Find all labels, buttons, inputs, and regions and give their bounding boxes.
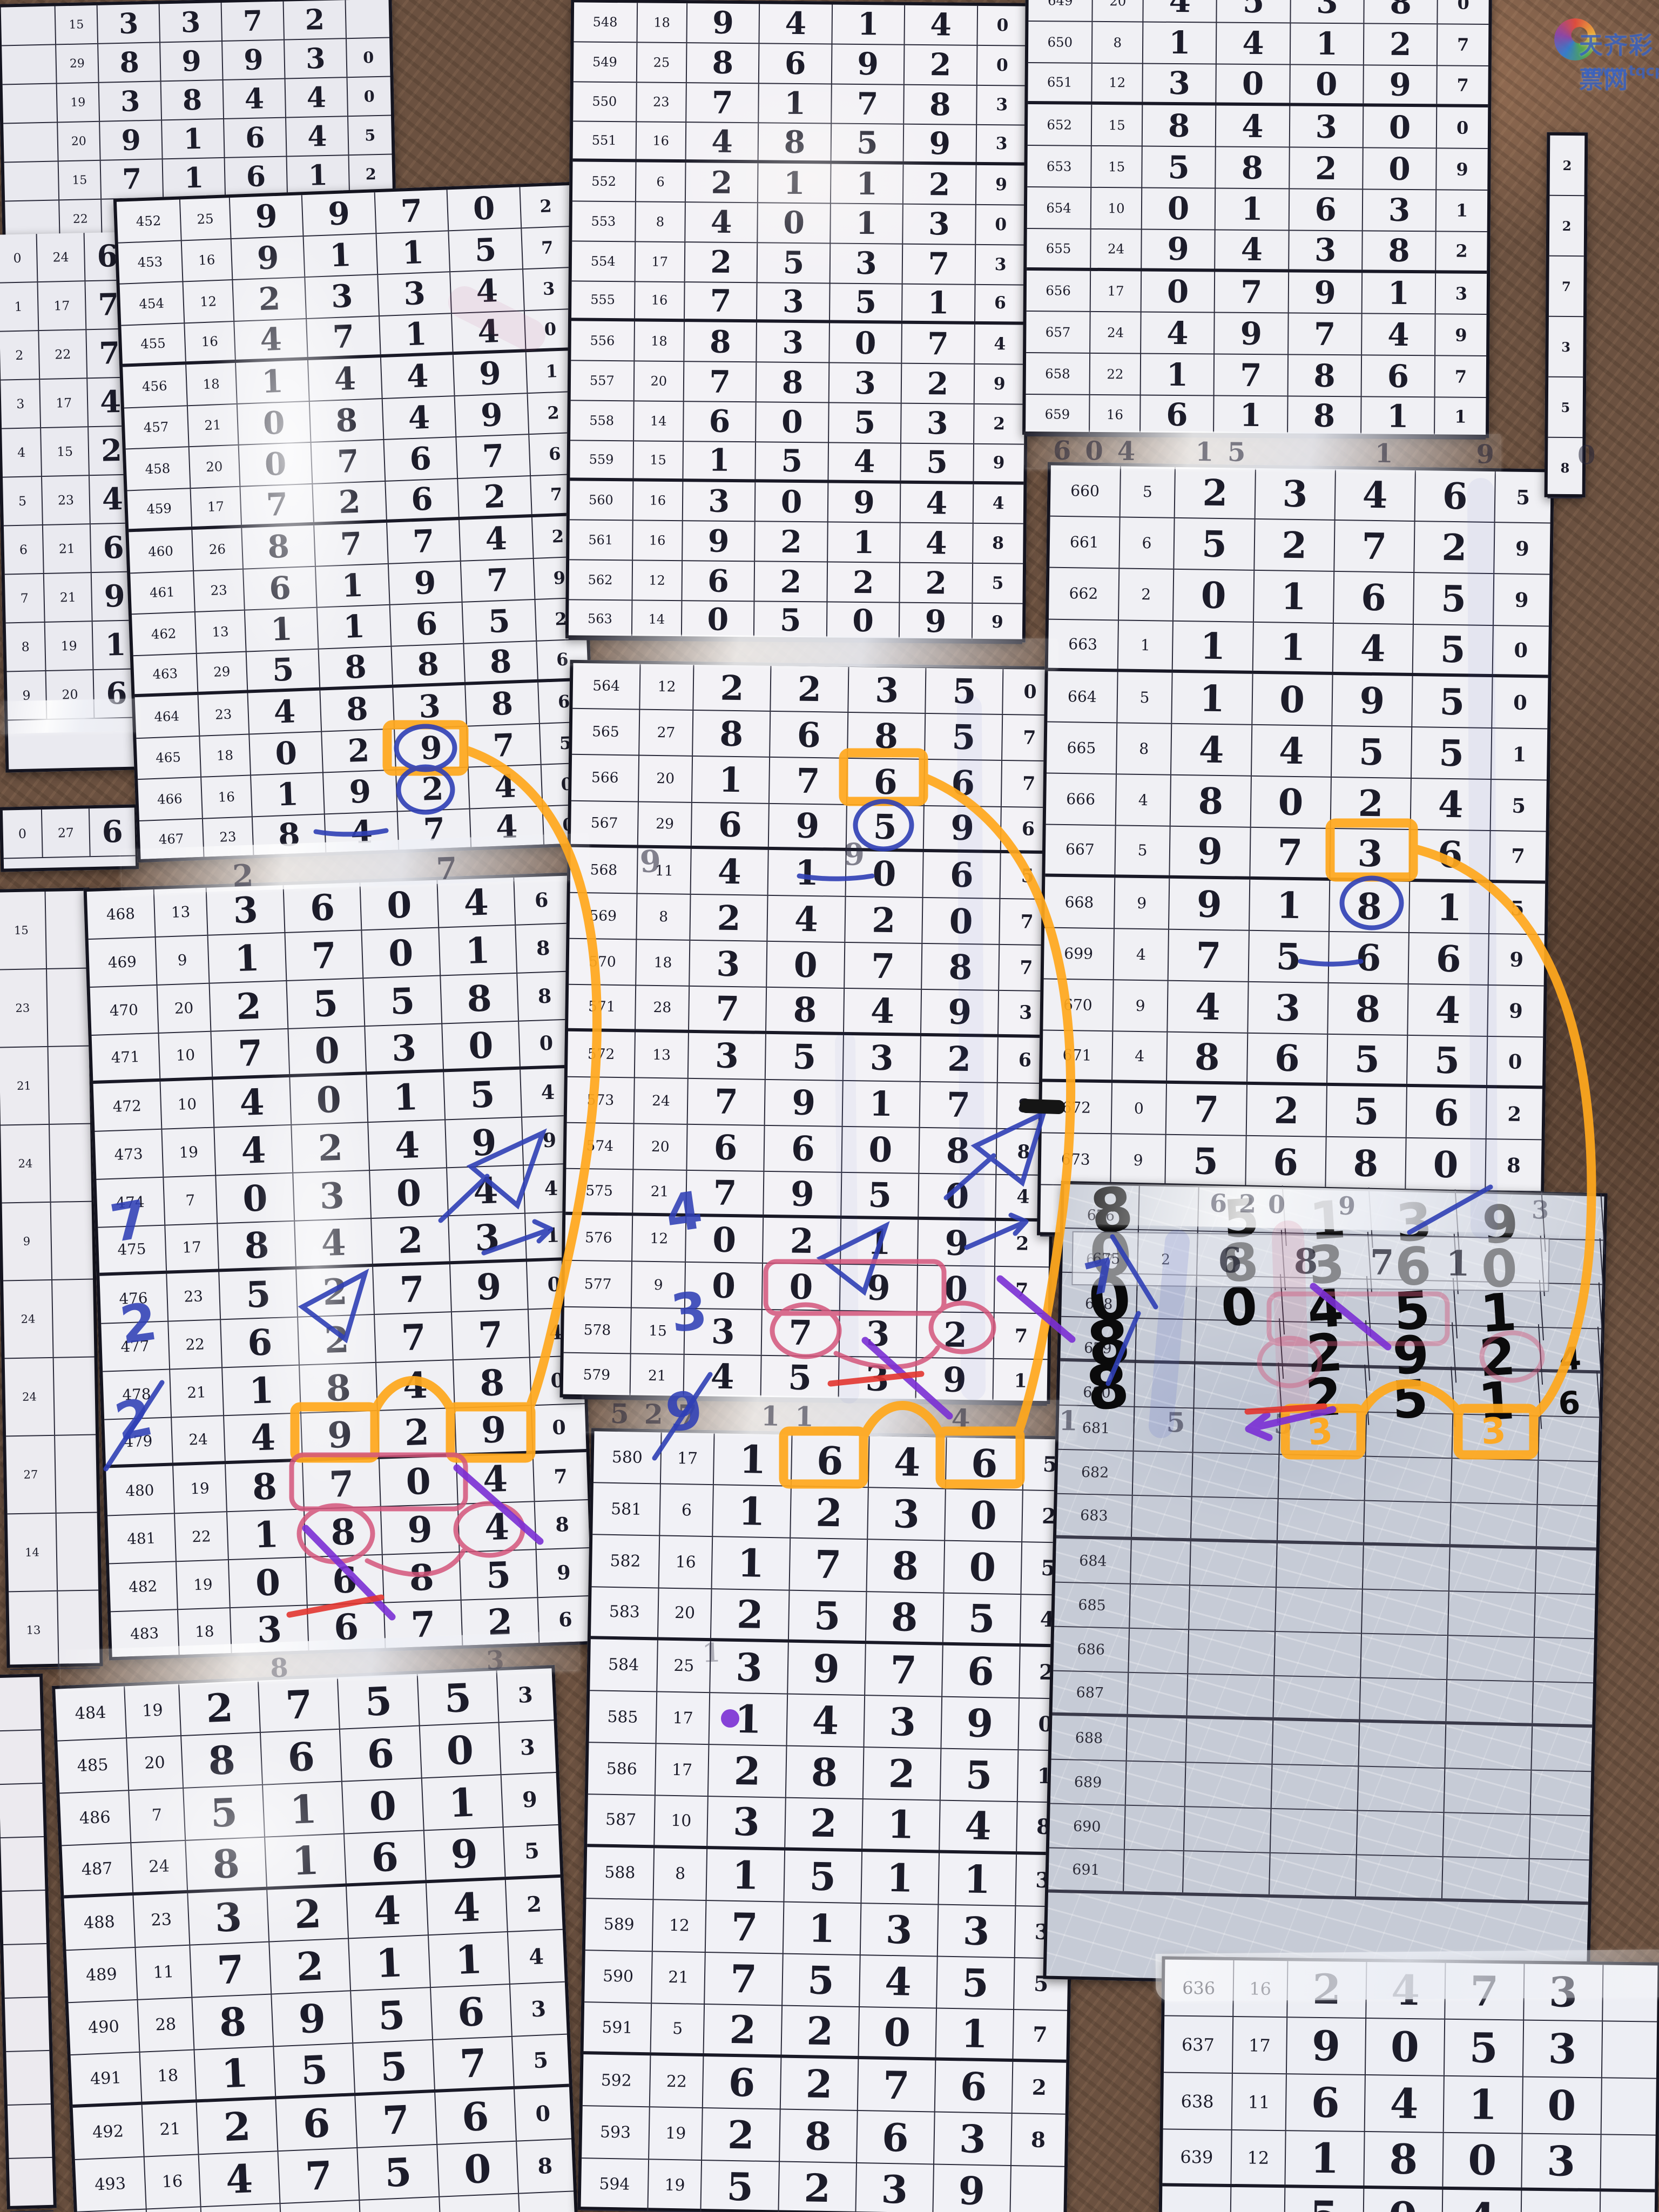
grid-cell: 5 [783, 1954, 861, 2006]
board-649-659: 6492045380650814127651123009765215843006… [1022, 0, 1492, 438]
grid-cell: 1 [1118, 621, 1174, 670]
grid-cell: 8 [654, 1848, 708, 1900]
grid-cell: 578 [564, 1307, 632, 1353]
grid-cell: 6 [390, 603, 464, 645]
grid-cell: 481 [107, 1514, 176, 1563]
grid-cell: 0 [1364, 2189, 1443, 2212]
grid-cell: 463 [133, 653, 198, 694]
grid-cell: 6 [1415, 470, 1496, 522]
grid-cell: 5 [1115, 826, 1171, 875]
grid-cell: 4 [450, 269, 524, 312]
grid-cell: 9 [323, 771, 397, 813]
grid-cell: 1 [1216, 188, 1290, 230]
grid-cell [4, 161, 59, 200]
grid-cell: 3 [708, 1797, 786, 1847]
grid-cell: 10 [655, 1796, 709, 1846]
grid-row: 5631405099 [569, 600, 1023, 644]
grid-row: 5681141065 [570, 847, 1055, 900]
grid-cell: 22 [175, 1512, 230, 1561]
grid-cell: 588 [586, 1847, 655, 1899]
grid-cell [1010, 2166, 1064, 2212]
grid-row: 24 [5, 1358, 96, 1437]
grid-cell: 0 [1493, 626, 1549, 675]
grid-cell: 3 [1436, 273, 1487, 314]
grid-cell: 2 [296, 1267, 375, 1317]
grid-cell: 7 [373, 1264, 451, 1314]
grid-cell: 2 [845, 897, 923, 943]
grid-cell: 0 [829, 323, 902, 363]
grid-cell: 5 [754, 602, 827, 639]
grid-cell: 5 [1491, 780, 1547, 831]
grid-cell [1445, 1724, 1533, 1770]
grid-cell: 6 [431, 1985, 512, 2039]
grid-cell: 3 [378, 272, 452, 315]
grid-cell: 27 [6, 1436, 57, 1514]
grid-cell [1272, 1765, 1359, 1810]
grid-cell: 5 [926, 668, 1004, 714]
grid-row: 5752179504 [565, 1169, 1050, 1222]
board-452-467: 4522599702453169115745412233434551647140… [113, 182, 597, 862]
grid-row: 591522017 [583, 2002, 1067, 2063]
grid-cell: 5 [247, 649, 321, 690]
grid-row: 5601630944 [570, 481, 1024, 524]
grid-row: 637179053 [1164, 2016, 1657, 2079]
grid-cell: 7 [190, 1943, 272, 1997]
board-484-493: 4841927553485208660348675101948724816954… [52, 1665, 579, 2212]
grid-cell: 7 [1549, 257, 1584, 316]
grid-cell: 16 [181, 239, 233, 281]
grid-cell: 583 [591, 1587, 659, 1637]
grid-cell: 24 [635, 1078, 689, 1124]
grid-cell: 4 [470, 806, 544, 847]
grid-cell: 2 [349, 154, 393, 193]
grid-cell: 3 [1524, 1964, 1603, 2021]
grid-cell: 19 [162, 1128, 217, 1177]
grid-cell: 1 [841, 1219, 919, 1265]
board-548-563: 5481894140549258692055023717835511648593… [565, 0, 1031, 643]
grid-cell: 556 [571, 321, 635, 361]
grid-row: 5611692148 [569, 521, 1023, 564]
grid-cell [1188, 1630, 1276, 1675]
grid-cell: 4 [234, 319, 308, 360]
grid-cell: 28 [138, 1998, 194, 2052]
grid-cell: 2 [520, 185, 571, 227]
grid-cell: 1 [236, 360, 310, 403]
grid-cell: 9 [156, 936, 210, 984]
grid-row: 664510950 [1047, 671, 1548, 729]
grid-cell: 0 [380, 1456, 458, 1506]
grid-cell: 3 [689, 1033, 767, 1078]
grid-cell: 0 [217, 1174, 295, 1223]
grid-cell: 699 [1044, 928, 1115, 979]
grid-cell: 8 [1486, 1139, 1541, 1191]
grid-cell: 1 [163, 158, 226, 197]
grid-cell: 1 [994, 1359, 1048, 1403]
grid-cell: 462 [132, 612, 197, 655]
grid-cell: 5 [788, 1590, 867, 1641]
grid-cell: 663 [1048, 619, 1119, 669]
grid-cell: 9 [916, 1358, 994, 1402]
grid-cell: 16 [185, 321, 236, 361]
grid-cell [54, 1358, 96, 1435]
grid-cell: 8 [454, 1358, 532, 1407]
grid-cell: 7 [1490, 831, 1546, 880]
grid-cell: 5 [1175, 518, 1255, 570]
grid-cell: 482 [109, 1562, 178, 1611]
grid-row: 14 [8, 1513, 98, 1592]
grid-cell: 6 [925, 760, 1003, 806]
grid-cell: 5 [761, 1356, 839, 1400]
grid-cell: 560 [570, 481, 633, 520]
grid-cell: 8 [218, 1222, 296, 1269]
grid-cell: 20 [1093, 0, 1144, 21]
grid-cell: 2 [974, 404, 1024, 444]
grid-cell: 1 [1410, 881, 1490, 933]
grid-cell: 7 [279, 2148, 360, 2203]
grid-cell: 2 [210, 981, 288, 1031]
grid-row [1, 1837, 45, 1892]
grid-row: 5621262225 [569, 560, 1023, 604]
grid-cell: 20 [634, 362, 684, 401]
grid-cell: 3 [1548, 317, 1583, 376]
grid-cell: 2 [780, 2058, 859, 2110]
grid-row: 668991815 [1044, 876, 1545, 935]
grid-cell: 17 [165, 1224, 220, 1270]
grid-row: 666480245 [1046, 774, 1547, 832]
grid-cell: 7 [1289, 314, 1363, 355]
grid-cell: 1 [349, 1935, 430, 1990]
grid-cell: 3 [98, 4, 160, 43]
grid-cell: 476 [99, 1274, 168, 1323]
grid-cell: 6 [1407, 1087, 1487, 1138]
grid-cell: 559 [570, 441, 633, 478]
grid-cell: 9 [272, 1991, 353, 2046]
grid-cell: 8 [1168, 1033, 1248, 1082]
grid-row: 588815113 [586, 1847, 1070, 1907]
grid-cell: 15 [55, 5, 98, 44]
grid-cell: 19 [173, 1464, 228, 1513]
grid-cell: 22 [168, 1320, 223, 1368]
grid-cell: 561 [569, 521, 633, 560]
watermark-site-name: 天齐彩票网 [1579, 26, 1659, 95]
grid-cell: 24 [37, 233, 86, 281]
grid-cell [1532, 1727, 1592, 1771]
grid-cell [1, 6, 56, 45]
grid-cell: 7 [312, 440, 386, 483]
grid-row: 636162473 [1164, 1959, 1657, 2022]
grid-cell: 7 [705, 1953, 784, 2005]
grid-row: 660523465 [1050, 466, 1551, 524]
grid-cell: 577 [564, 1261, 633, 1307]
grid-cell: 2 [269, 1939, 351, 1993]
grid-cell: 23 [167, 1272, 221, 1320]
grid-cell: 29 [197, 652, 248, 692]
grid-cell [1186, 1718, 1274, 1764]
grid-cell: 23 [637, 83, 687, 122]
grid-cell: 7 [903, 244, 976, 284]
grid-cell: 491 [71, 2053, 142, 2105]
grid-cell: 2 [1550, 136, 1585, 195]
grid-cell: 2 [693, 665, 772, 711]
grid-cell: 3 [856, 2163, 934, 2212]
grid-cell: 5 [184, 1785, 265, 1840]
grid-cell: 9 [230, 195, 304, 238]
grid-cell [1447, 1636, 1535, 1681]
grid-cell: 9 [1215, 313, 1289, 354]
grid-cell: 7 [1169, 929, 1249, 981]
grid-cell: 0 [682, 601, 755, 638]
grid-cell: 19 [649, 2160, 703, 2211]
grid-cell: 0 [1363, 149, 1437, 190]
grid-cell: 1 [194, 2047, 276, 2099]
grid-cell: 7 [762, 1310, 840, 1355]
grid-cell: 9 [302, 192, 376, 235]
grid-cell: 27 [42, 808, 91, 857]
grid-cell: 12 [653, 1900, 707, 1952]
grid-cell: 2 [461, 1598, 539, 1645]
grid-row: 667597367 [1045, 825, 1546, 884]
grid-row: 5922262762 [583, 2054, 1067, 2115]
grid-cell: 8 [757, 363, 829, 402]
grid-cell: 569 [569, 893, 638, 939]
grid-cell: 6 [90, 807, 136, 856]
grid-cell: 19 [177, 1560, 231, 1609]
grid-cell: 2 [1414, 522, 1495, 573]
board-660-674: 6605234656616527296622016596631114506645… [1037, 462, 1554, 1243]
grid-cell: 21 [170, 1368, 225, 1417]
grid-cell: 2 [755, 562, 828, 601]
grid-cell: 27 [640, 710, 694, 756]
grid-cell: 4 [458, 1502, 536, 1552]
grid-row: 5502371783 [573, 82, 1027, 126]
grid-cell: 9 [454, 352, 528, 395]
grid-cell: 6 [759, 44, 832, 83]
grid-cell: 5 [463, 600, 537, 643]
grid-cell: 1 [936, 2009, 1014, 2059]
grid-cell: 9 [683, 522, 756, 561]
grid-cell [1363, 1546, 1451, 1591]
grid-cell [1451, 1503, 1538, 1546]
grid-cell: 9 [904, 125, 977, 162]
grid-row: 6591661811 [1026, 395, 1486, 440]
grid-cell: 4 [1143, 0, 1217, 22]
grid-cell: 456 [123, 365, 187, 407]
grid-cell: 6 [975, 285, 1026, 322]
grid-cell: 2 [179, 1681, 261, 1735]
grid-cell: 562 [569, 560, 632, 599]
grid-row: 5561883074 [571, 321, 1025, 365]
grid-cell: 1 [758, 164, 831, 203]
grid-cell: 20 [58, 122, 101, 161]
grid-cell: 572 [568, 1031, 636, 1077]
grid-row: 5832025854 [591, 1587, 1075, 1648]
grid-cell [1603, 1965, 1658, 2021]
grid-cell [1128, 1673, 1189, 1715]
grid-cell: 2 [827, 563, 900, 602]
grid-cell [1601, 2135, 1656, 2189]
grid-cell: 2 [1487, 1088, 1542, 1139]
grid-cell: 23 [203, 817, 254, 857]
grid-cell: 20 [658, 1588, 712, 1638]
grid-cell: 6 [1286, 2074, 1366, 2131]
grid-cell: 0 [442, 1022, 521, 1069]
grid-cell: 9 [455, 394, 529, 436]
grid-cell: 7 [994, 1313, 1048, 1359]
grid-cell: 21 [43, 524, 92, 573]
board-676-691-handwritten: 6765139867783600678045106792924868025168… [1043, 1181, 1607, 1992]
grid-cell: 8 [1117, 723, 1172, 774]
grid-cell: 6 [847, 759, 926, 805]
grid-cell: 3 [1523, 2021, 1603, 2078]
grid-row: 5 [1548, 377, 1583, 438]
grid-cell: 2 [791, 1487, 869, 1539]
grid-row: 6552494382 [1027, 229, 1487, 274]
grid-cell [1365, 1457, 1453, 1502]
grid-cell: 8 [1288, 355, 1362, 396]
grid-cell: 2 [1331, 778, 1411, 829]
grid-cell: 18 [637, 3, 687, 42]
grid-cell: 17 [657, 1692, 711, 1744]
grid-cell: 6 [636, 163, 686, 202]
grid-row: 4152 [2, 426, 134, 477]
grid-cell [1129, 1629, 1189, 1673]
grid-cell: 15 [633, 441, 684, 478]
grid-cell: 7 [685, 282, 758, 320]
grid-row: 5891271333 [585, 1899, 1069, 1959]
grid-cell: 7 [689, 987, 767, 1030]
grid-cell [1602, 2021, 1657, 2078]
grid-cell: 0 [922, 898, 1001, 944]
grid-cell: 5 [1412, 727, 1492, 779]
grid-cell: 9 [222, 41, 285, 79]
grid-cell: 5 [766, 1034, 844, 1080]
grid-cell: 7 [307, 316, 381, 357]
grid-cell: 551 [573, 122, 637, 159]
grid-cell: 1 [831, 204, 903, 244]
grid-cell: 649 [1028, 0, 1093, 21]
grid-cell: 589 [585, 1899, 654, 1951]
grid-cell: 3 [207, 885, 285, 935]
grid-cell: 660 [1050, 466, 1121, 517]
grid-cell: 21 [0, 1047, 50, 1125]
grid-cell: 2 [1246, 1085, 1327, 1136]
grid-row: 7219 [5, 572, 138, 623]
grid-cell: 493 [75, 2157, 147, 2211]
grid-cell: 2 [863, 1748, 941, 1800]
grid-cell: 6 [857, 2111, 935, 2163]
grid-cell: 3 [977, 85, 1027, 125]
grid-cell: 8 [441, 974, 519, 1023]
grid-cell [1452, 1414, 1540, 1460]
grid-cell: 2 [1255, 520, 1335, 571]
grid-cell: 4 [1333, 624, 1413, 673]
grid-cell: 0 [1252, 674, 1333, 725]
grid-cell: 4 [684, 1355, 762, 1399]
grid-cell: 8 [99, 43, 161, 82]
grid-cell: 2 [711, 1589, 790, 1640]
grid-cell [1364, 1501, 1452, 1545]
grid-cell: 2 [506, 1878, 563, 1931]
grid-row: 5821617805 [592, 1535, 1076, 1596]
grid-cell: 1 [862, 1799, 941, 1850]
grid-cell: 6 [514, 876, 569, 925]
grid-cell: 471 [92, 1034, 160, 1081]
grid-row: 13 [9, 1590, 99, 1670]
grid-cell: 1 [208, 933, 287, 983]
grid-row: 5572078329 [571, 361, 1025, 405]
grid-row: 5712878493 [568, 985, 1053, 1038]
grid-cell: 8 [1328, 983, 1408, 1035]
grid-cell: 563 [569, 600, 632, 637]
grid-cell: 3 [903, 205, 976, 244]
grid-cell: 0 [1443, 2133, 1522, 2188]
grid-cell: 4 [286, 117, 349, 156]
grid-cell: 5 [1327, 1035, 1408, 1084]
grid-cell: 15 [1092, 105, 1143, 145]
grid-cell: 29 [56, 44, 99, 83]
grid-cell: 5 [348, 116, 392, 154]
grid-cell: 6 [284, 882, 362, 932]
grid-cell: 5 [338, 1674, 420, 1729]
grid-row: 5902175455 [584, 1951, 1068, 2011]
grid-cell [1276, 1588, 1363, 1633]
grid-cell: 650 [1028, 22, 1093, 63]
grid-cell: 0 [1142, 188, 1216, 229]
grid-cell: 0 [918, 1266, 996, 1312]
grid-cell: 0 [827, 602, 900, 639]
grid-cell [6, 2051, 51, 2105]
grid-cell: 3 [830, 244, 903, 283]
grid-cell: 9 [900, 603, 973, 640]
grid-cell: 2 [267, 1886, 349, 1941]
grid-cell [52, 1280, 94, 1357]
grid-cell: 655 [1027, 229, 1091, 268]
grid-cell: 6 [946, 1438, 1024, 1490]
grid-cell: 672 [1042, 1082, 1112, 1134]
grid-cell [1124, 1850, 1184, 1892]
grid-row: 6561707913 [1027, 271, 1487, 315]
grid-cell: 7 [1438, 66, 1488, 104]
grid-cell: 12 [632, 561, 683, 601]
grid-cell: 5 [354, 2040, 435, 2093]
grid-cell: 5 [1445, 2020, 1524, 2076]
grid-cell: 5 [901, 443, 974, 481]
grid-cell: 0 [0, 234, 38, 282]
grid-cell: 5 [830, 284, 903, 321]
grid-cell: 6 [682, 561, 755, 601]
grid-cell [1132, 1496, 1192, 1538]
grid-cell: 8 [321, 688, 395, 731]
grid-cell: 0 [1522, 2078, 1602, 2134]
grid-cell: 2 [779, 2162, 857, 2212]
grid-cell: 3 [1255, 468, 1336, 520]
grid-cell: 1 [768, 850, 847, 896]
grid-cell: 7 [164, 1176, 218, 1224]
grid-cell: 5 [460, 1550, 538, 1600]
grid-cell: 7 [315, 523, 389, 565]
grid-row: 6531558209 [1027, 146, 1488, 191]
grid-cell: 0 [758, 203, 831, 242]
grid-cell: 6 [1289, 189, 1363, 230]
grid-cell: 2 [1119, 569, 1175, 621]
grid-cell: 566 [571, 755, 640, 801]
grid-cell [1449, 1547, 1537, 1593]
grid-cell: 24 [131, 1841, 188, 1892]
grid-cell: 464 [135, 695, 200, 738]
grid-cell [5, 1998, 50, 2051]
grid-cell: 6 [765, 1126, 843, 1172]
grid-cell: 1 [842, 1081, 921, 1127]
